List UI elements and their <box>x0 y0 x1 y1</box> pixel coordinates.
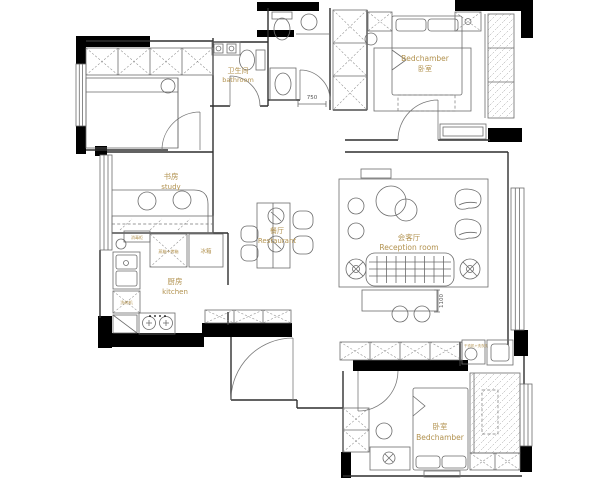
room-top-left <box>86 48 213 148</box>
pouf-1 <box>348 198 364 214</box>
label-reception-en: Reception room <box>379 243 438 252</box>
label-dishwasher: 洗碗机 <box>120 299 133 306</box>
floor-plan-page: 卫生间 bathroom 750 <box>0 0 600 480</box>
laundry-sink <box>487 340 513 365</box>
dimension-tv-wall: 1100 <box>434 290 445 312</box>
pouf-2 <box>348 223 364 239</box>
label-disinfection-cabinet: 消毒柜 <box>131 234 143 240</box>
label-bedroom-bottom-en: Bedchamber <box>416 433 465 442</box>
dressing-cabinet <box>365 12 392 45</box>
wardrobe-bedroom-bottom <box>470 373 520 470</box>
kitchen-sink <box>113 239 140 289</box>
label-fridge: 冰箱 <box>200 247 212 255</box>
label-bedroom-top-en: Bedchamber <box>401 54 450 63</box>
label-reception-zh: 会客厅 <box>398 232 421 242</box>
window-top-left <box>76 64 86 126</box>
dining-table <box>257 203 290 268</box>
room-bathroom: 卫生间 bathroom <box>212 42 265 84</box>
label-study-en: study <box>161 183 180 191</box>
dining-chair-3 <box>293 211 313 229</box>
armchair-1 <box>455 189 481 209</box>
cabinet-left-column <box>343 408 369 452</box>
label-washer-dryer: 干衣机+洗衣机 <box>464 343 488 348</box>
coffee-table <box>376 186 417 221</box>
round-basin <box>301 14 317 30</box>
tv-bench <box>362 290 438 322</box>
window-study <box>100 155 112 250</box>
wardrobe-top-left <box>86 48 213 75</box>
label-study-zh: 书房 <box>164 171 179 181</box>
door-bedroom-bottom <box>358 371 398 411</box>
small-table-fan <box>370 447 410 470</box>
room-reception: 1100 会客厅 Reception room <box>339 169 488 322</box>
door-entry <box>231 338 293 400</box>
steam-oven-unit: 蒸箱+烤箱 <box>150 234 187 267</box>
washbasin-lower <box>270 68 296 100</box>
room-bedroom-top: Bedchamber 卧室 <box>365 12 514 139</box>
label-bedroom-bottom-zh: 卧室 <box>433 421 448 431</box>
nightstand-top <box>455 12 481 31</box>
windows <box>76 64 532 446</box>
stool-top-left <box>161 79 175 93</box>
sofa <box>366 253 454 286</box>
shoe-cabinet-row <box>205 310 291 323</box>
stool-bedroom-bottom <box>376 423 392 439</box>
floor-plan-drawing: 卫生间 bathroom 750 <box>0 0 600 480</box>
side-table-left <box>346 259 366 279</box>
dining-chair-1 <box>241 226 258 242</box>
console-table <box>361 169 391 178</box>
door-top-left-room <box>162 112 200 150</box>
label-kitchen-en: kitchen <box>162 288 188 296</box>
label-dining-en: Restaurant <box>258 237 297 245</box>
desk-study <box>112 190 208 233</box>
corner-counter <box>113 315 137 333</box>
door-bedroom-top <box>398 100 438 140</box>
room-bedroom-bottom: 卧室 Bedchamber <box>343 373 520 477</box>
room-study: 书房 study <box>112 171 213 233</box>
dim-1100: 1100 <box>439 294 445 308</box>
label-dining-zh: 餐厅 <box>270 226 284 235</box>
dining-chair-2 <box>241 245 258 261</box>
window-reception <box>511 188 524 330</box>
label-bathroom-zh: 卫生间 <box>228 66 249 75</box>
dishwasher: 洗碗机 <box>113 291 140 313</box>
label-bathroom-en: bathroom <box>222 76 254 84</box>
label-kitchen-zh: 厨房 <box>168 276 183 286</box>
cabinet-band-study <box>112 216 213 233</box>
label-steam-oven: 蒸箱+烤箱 <box>158 248 178 255</box>
rug-bedroom-top <box>398 95 455 111</box>
desk-chair-2 <box>173 191 191 209</box>
wardrobe-bedroom-top <box>485 14 514 118</box>
gas-stove <box>139 313 175 334</box>
window-bedroom-bottom <box>520 384 532 446</box>
vanity-sinks <box>212 42 240 55</box>
side-table-right <box>460 259 480 279</box>
dim-750: 750 <box>307 95 318 101</box>
bench-bedroom-top <box>440 124 486 139</box>
fridge: 冰箱 <box>189 234 223 267</box>
desk-chair-1 <box>138 192 156 210</box>
room-dining: 餐厅 Restaurant <box>241 203 313 268</box>
armchair-2 <box>455 219 481 239</box>
dimension-corridor: 750 <box>298 95 326 107</box>
closet-strip <box>333 10 367 110</box>
room-kitchen: 消毒柜 蒸箱+烤箱 冰箱 洗碗机 <box>113 231 223 334</box>
label-bedroom-top-zh: 卧室 <box>418 64 432 73</box>
